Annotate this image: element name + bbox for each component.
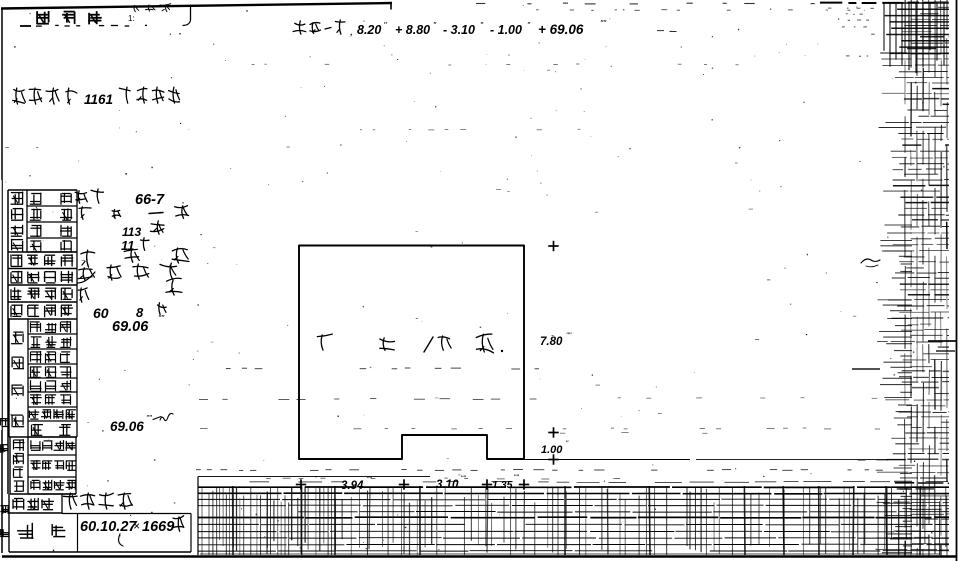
- svg-text:×: ×: [133, 519, 140, 533]
- svg-text:- 3.10: - 3.10: [443, 23, 475, 37]
- svg-text:60: 60: [93, 305, 109, 321]
- svg-text:,: ,: [350, 24, 353, 38]
- svg-text:": ": [566, 439, 569, 448]
- svg-text:113: 113: [122, 225, 141, 239]
- svg-text:66-7: 66-7: [135, 192, 165, 208]
- svg-text:69.06: 69.06: [110, 419, 144, 434]
- svg-text:69.06: 69.06: [112, 319, 149, 335]
- svg-text:3.10: 3.10: [436, 479, 459, 491]
- svg-text:+ 8.80: + 8.80: [395, 23, 430, 37]
- svg-text:60.10.27: 60.10.27: [80, 519, 137, 535]
- svg-text:+ 69.06: + 69.06: [538, 22, 584, 37]
- svg-text:- 1.00: - 1.00: [490, 23, 522, 37]
- svg-text:"": "": [158, 313, 165, 323]
- svg-text:1161: 1161: [84, 92, 113, 107]
- svg-text:"": "": [600, 18, 607, 28]
- svg-text:7.80: 7.80: [540, 336, 563, 348]
- svg-text:8: 8: [136, 305, 144, 320]
- svg-text:8.20: 8.20: [357, 23, 381, 37]
- svg-text:"": "": [367, 475, 373, 484]
- svg-text:1669: 1669: [142, 519, 174, 535]
- svg-text:1:: 1:: [128, 14, 135, 23]
- svg-text:1.00: 1.00: [541, 444, 563, 456]
- svg-text:"": "": [514, 473, 520, 482]
- svg-text:"": "": [566, 331, 572, 340]
- svg-text:1.35: 1.35: [492, 479, 513, 491]
- svg-text:3.94: 3.94: [341, 480, 364, 492]
